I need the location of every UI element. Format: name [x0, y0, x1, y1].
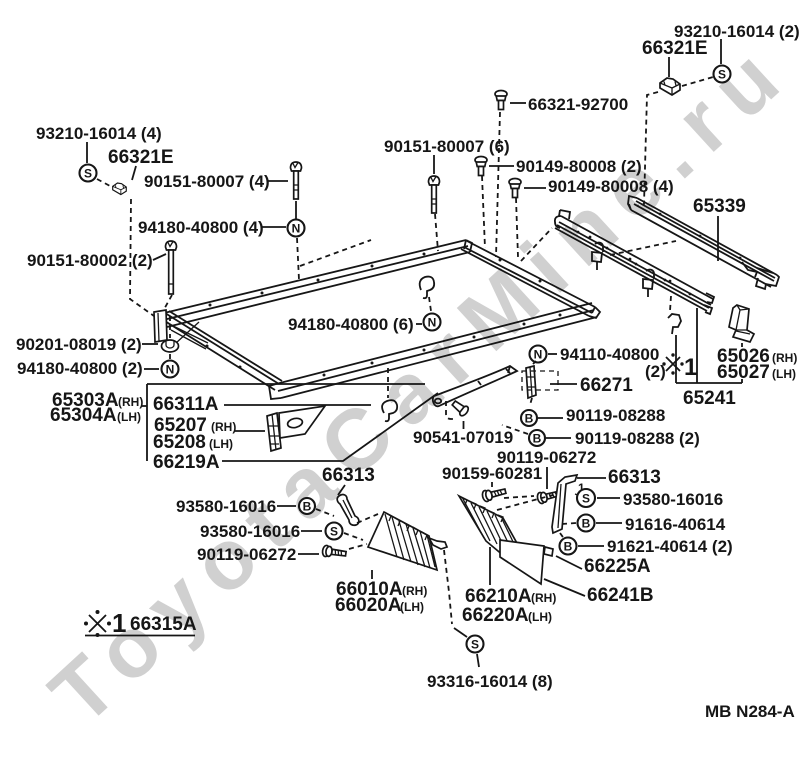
- svg-text:65339: 65339: [693, 196, 746, 217]
- svg-text:90149-80008 (2): 90149-80008 (2): [516, 157, 642, 176]
- svg-text:90149-80008 (4): 90149-80008 (4): [548, 177, 674, 196]
- svg-text:66321E: 66321E: [108, 147, 174, 168]
- svg-text:66313: 66313: [322, 465, 375, 486]
- svg-text:93580-16016: 93580-16016: [176, 497, 276, 516]
- svg-text:S: S: [84, 167, 92, 181]
- svg-text:(LH): (LH): [209, 437, 233, 451]
- svg-text:66321-92700: 66321-92700: [528, 95, 628, 114]
- svg-text:93580-16016: 93580-16016: [623, 490, 723, 509]
- svg-text:90201-08019 (2): 90201-08019 (2): [16, 335, 142, 354]
- svg-text:B: B: [533, 432, 542, 446]
- svg-text:90119-08288 (2): 90119-08288 (2): [575, 429, 700, 448]
- svg-text:91621-40614 (2): 91621-40614 (2): [607, 537, 733, 556]
- svg-text:66315A: 66315A: [130, 614, 197, 635]
- svg-text:(RH): (RH): [772, 351, 797, 365]
- svg-text:B: B: [582, 517, 591, 531]
- svg-text:93316-16014 (8): 93316-16014 (8): [427, 672, 553, 691]
- svg-text:65304A: 65304A: [50, 405, 117, 426]
- svg-text:91616-40614: 91616-40614: [625, 515, 726, 534]
- svg-text:66219A: 66219A: [153, 452, 220, 473]
- svg-text:93580-16016: 93580-16016: [200, 522, 300, 541]
- svg-text:S: S: [330, 525, 338, 539]
- svg-text:B: B: [564, 540, 573, 554]
- svg-text:(LH): (LH): [772, 367, 796, 381]
- svg-text:N: N: [534, 348, 543, 362]
- svg-text:65241: 65241: [683, 388, 736, 409]
- svg-text:93210-16014 (4): 93210-16014 (4): [36, 124, 162, 143]
- svg-text:S: S: [471, 638, 479, 652]
- svg-text:66020A: 66020A: [335, 595, 402, 616]
- svg-text:66321E: 66321E: [642, 38, 708, 59]
- svg-text:66271: 66271: [580, 375, 633, 396]
- svg-text:S: S: [582, 492, 590, 506]
- svg-text:65027: 65027: [717, 362, 770, 383]
- svg-text:N: N: [292, 222, 301, 236]
- svg-text:66241B: 66241B: [587, 585, 654, 606]
- svg-text:90151-80007 (4): 90151-80007 (4): [144, 172, 270, 191]
- svg-text:S: S: [718, 68, 726, 82]
- svg-text:MB N284-A: MB N284-A: [705, 702, 795, 721]
- svg-text:1: 1: [112, 608, 126, 638]
- svg-text:(RH): (RH): [531, 591, 556, 605]
- svg-text:(RH): (RH): [402, 584, 427, 598]
- svg-text:94180-40800 (6): 94180-40800 (6): [288, 315, 414, 334]
- svg-text:90119-06272: 90119-06272: [197, 545, 296, 564]
- svg-text:N: N: [428, 316, 437, 330]
- svg-text:90119-08288: 90119-08288: [566, 406, 665, 425]
- svg-text:(LH): (LH): [117, 410, 141, 424]
- svg-text:(RH): (RH): [211, 420, 236, 434]
- svg-text:(LH): (LH): [400, 600, 424, 614]
- svg-text:66313: 66313: [608, 467, 661, 488]
- svg-text:1: 1: [684, 354, 697, 381]
- svg-text:(RH): (RH): [118, 395, 143, 409]
- svg-text:66311A: 66311A: [153, 394, 219, 415]
- svg-text:66210A: 66210A: [465, 586, 532, 607]
- svg-text:B: B: [525, 412, 534, 426]
- svg-text:65208: 65208: [153, 432, 206, 453]
- svg-text:90151-80007 (6): 90151-80007 (6): [384, 137, 510, 156]
- svg-text:(LH): (LH): [528, 610, 552, 624]
- svg-text:90159-60281: 90159-60281: [442, 464, 542, 483]
- svg-text:94180-40800 (2): 94180-40800 (2): [17, 359, 143, 378]
- svg-text:66225A: 66225A: [584, 556, 651, 577]
- svg-text:66220A: 66220A: [462, 605, 529, 626]
- svg-text:90151-80002 (2): 90151-80002 (2): [27, 251, 153, 270]
- svg-text:N: N: [166, 363, 175, 377]
- svg-text:94180-40800 (4): 94180-40800 (4): [138, 218, 264, 237]
- svg-text:90541-07019: 90541-07019: [413, 428, 513, 447]
- svg-text:B: B: [303, 500, 312, 514]
